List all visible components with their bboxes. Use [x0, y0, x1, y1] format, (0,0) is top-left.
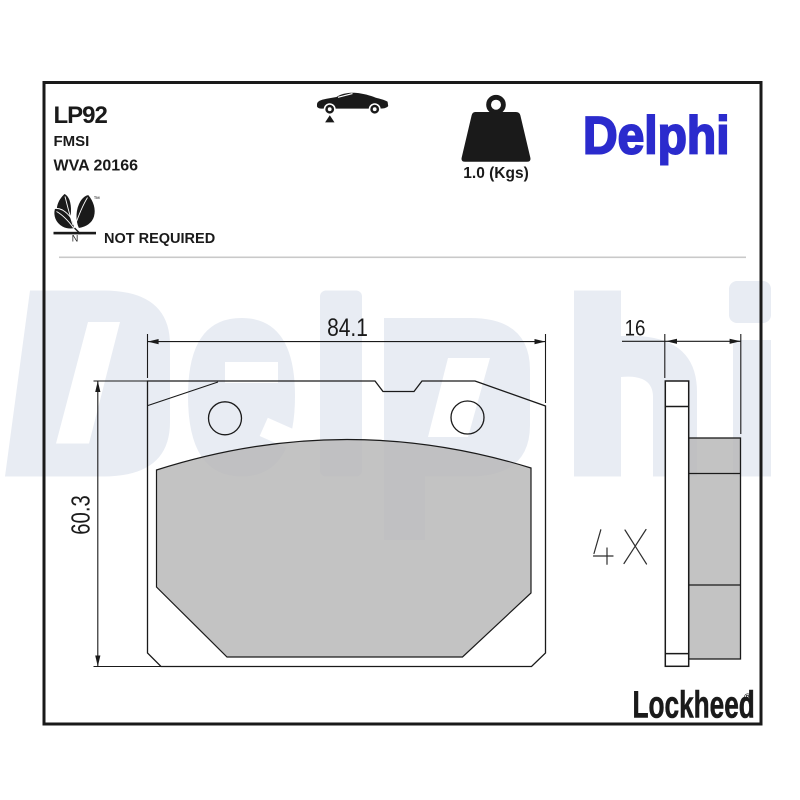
- svg-text:®: ®: [744, 693, 752, 704]
- svg-text:™: ™: [94, 196, 101, 203]
- svg-text:WVA 20166: WVA 20166: [54, 158, 139, 175]
- svg-text:LP92: LP92: [54, 102, 108, 129]
- svg-text:Delphi: Delphi: [583, 105, 730, 165]
- svg-text:FMSI: FMSI: [54, 133, 90, 150]
- svg-text:NOT REQUIRED: NOT REQUIRED: [104, 231, 215, 247]
- svg-text:1.0 (Kgs): 1.0 (Kgs): [463, 165, 528, 182]
- svg-text:84.1: 84.1: [327, 313, 368, 341]
- svg-text:Lockheed: Lockheed: [633, 683, 755, 726]
- svg-text:60.3: 60.3: [66, 495, 95, 534]
- svg-text:N: N: [72, 234, 79, 244]
- svg-text:16: 16: [625, 317, 646, 341]
